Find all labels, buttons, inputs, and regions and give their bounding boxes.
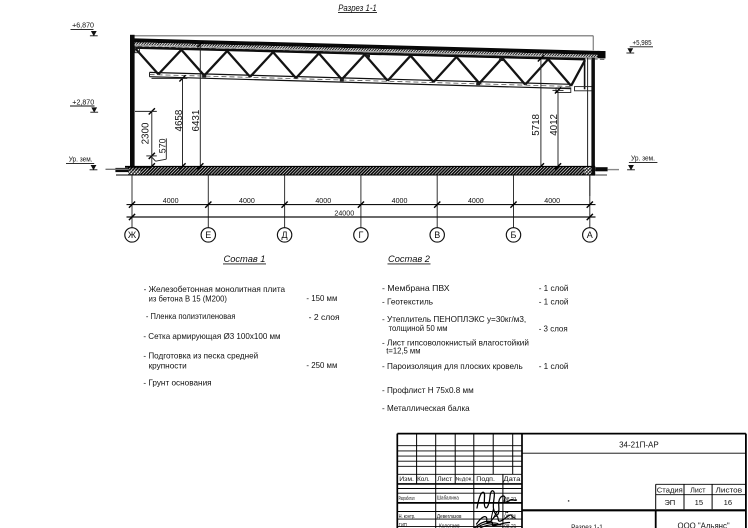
svg-text:- Мембрана ПВХ: - Мембрана ПВХ <box>382 283 450 293</box>
svg-text:№док.: №док. <box>455 476 473 482</box>
svg-text:- Геотекстиль: - Геотекстиль <box>382 297 433 307</box>
svg-text:- Сетка армирующая Ø3 100х100: - Сетка армирующая Ø3 100х100 мм <box>143 331 280 341</box>
svg-text:16: 16 <box>724 498 732 507</box>
svg-text:толщиной 50 мм: толщиной 50 мм <box>389 323 448 333</box>
svg-text:Девеглазов: Девеглазов <box>437 514 462 520</box>
svg-text:Лист: Лист <box>437 476 452 483</box>
svg-text:+5,985: +5,985 <box>633 38 652 47</box>
svg-text:08.21: 08.21 <box>504 524 516 528</box>
svg-text:Подп.: Подп. <box>476 476 495 483</box>
svg-text:Состав 2: Состав 2 <box>388 254 431 264</box>
svg-text:4658: 4658 <box>174 109 185 131</box>
svg-text:Г: Г <box>358 230 363 240</box>
svg-text:Ур. зем.: Ур. зем. <box>69 155 93 164</box>
svg-text:Изм.: Изм. <box>399 476 414 483</box>
svg-text:- 1 слой: - 1 слой <box>539 297 569 307</box>
svg-text:Н. контр.: Н. контр. <box>399 514 416 520</box>
svg-text:+6,870: +6,870 <box>72 21 94 30</box>
svg-text:4000: 4000 <box>163 197 179 205</box>
svg-text:ЭП: ЭП <box>664 498 675 507</box>
svg-text:Лист: Лист <box>690 488 706 495</box>
svg-text:5718: 5718 <box>531 113 542 135</box>
svg-text:- Пленка полиэтиленовая: - Пленка полиэтиленовая <box>146 311 236 321</box>
svg-text:из бетона В 15 (М200): из бетона В 15 (М200) <box>149 293 228 303</box>
svg-text:ООО "Альянс": ООО "Альянс" <box>678 522 730 528</box>
svg-text:Колотаев: Колотаев <box>439 523 460 528</box>
svg-text:6431: 6431 <box>191 110 202 132</box>
svg-text:4000: 4000 <box>544 197 560 205</box>
svg-text:570: 570 <box>158 138 168 153</box>
svg-text:Разрез 1-1: Разрез 1-1 <box>571 524 603 528</box>
svg-text:В: В <box>434 230 440 240</box>
svg-text:4000: 4000 <box>315 197 331 205</box>
svg-text:- Пароизоляция для плоских кро: - Пароизоляция для плоских кровель <box>382 361 523 371</box>
svg-text:Д: Д <box>282 230 288 240</box>
svg-text:Шабалина: Шабалина <box>437 496 459 502</box>
svg-text:Дата: Дата <box>503 476 520 483</box>
svg-text:ГИП: ГИП <box>399 523 407 528</box>
svg-text:- 2 слоя: - 2 слоя <box>309 312 340 322</box>
svg-text:Разрез 1-1: Разрез 1-1 <box>338 3 377 13</box>
svg-text:Ж: Ж <box>128 230 137 240</box>
svg-text:крупности: крупности <box>149 360 187 370</box>
svg-text:Б: Б <box>511 230 517 240</box>
svg-text:Разработал: Разработал <box>399 496 415 502</box>
svg-text:- 150 мм: - 150 мм <box>306 293 337 303</box>
svg-text:- Профлист Н 75х0.8 мм: - Профлист Н 75х0.8 мм <box>382 385 474 395</box>
svg-text:Ур. зем.: Ур. зем. <box>631 153 655 162</box>
svg-text:Состав 1: Состав 1 <box>224 254 266 264</box>
svg-text:- 1 слой: - 1 слой <box>539 361 569 371</box>
svg-text:t=12,5 мм: t=12,5 мм <box>386 346 421 356</box>
svg-text:А: А <box>587 230 593 240</box>
svg-text:Е: Е <box>205 230 211 240</box>
svg-text:- Подготовка из песка средней: - Подготовка из песка средней <box>143 350 258 360</box>
svg-text:Кол.: Кол. <box>417 476 430 483</box>
svg-text:- Грунт основания: - Грунт основания <box>143 378 211 388</box>
svg-text:2300: 2300 <box>140 122 151 144</box>
svg-text:4000: 4000 <box>468 197 484 205</box>
svg-text:Стадия: Стадия <box>657 488 683 495</box>
svg-text:- 250 мм: - 250 мм <box>306 360 337 370</box>
svg-text:24000: 24000 <box>334 210 354 218</box>
svg-text:+2,870: +2,870 <box>72 97 94 106</box>
svg-text:34-21П-АР: 34-21П-АР <box>619 441 659 450</box>
svg-text:4000: 4000 <box>239 197 255 205</box>
svg-text:- 3 слоя: - 3 слоя <box>539 324 568 334</box>
svg-text:4012: 4012 <box>549 114 560 136</box>
svg-text:- 1 слой: - 1 слой <box>539 283 569 293</box>
svg-text:15: 15 <box>695 498 703 507</box>
svg-text:Листов: Листов <box>716 488 743 495</box>
svg-text:- Металлическая балка: - Металлическая балка <box>382 403 470 413</box>
svg-text:4000: 4000 <box>392 197 408 205</box>
